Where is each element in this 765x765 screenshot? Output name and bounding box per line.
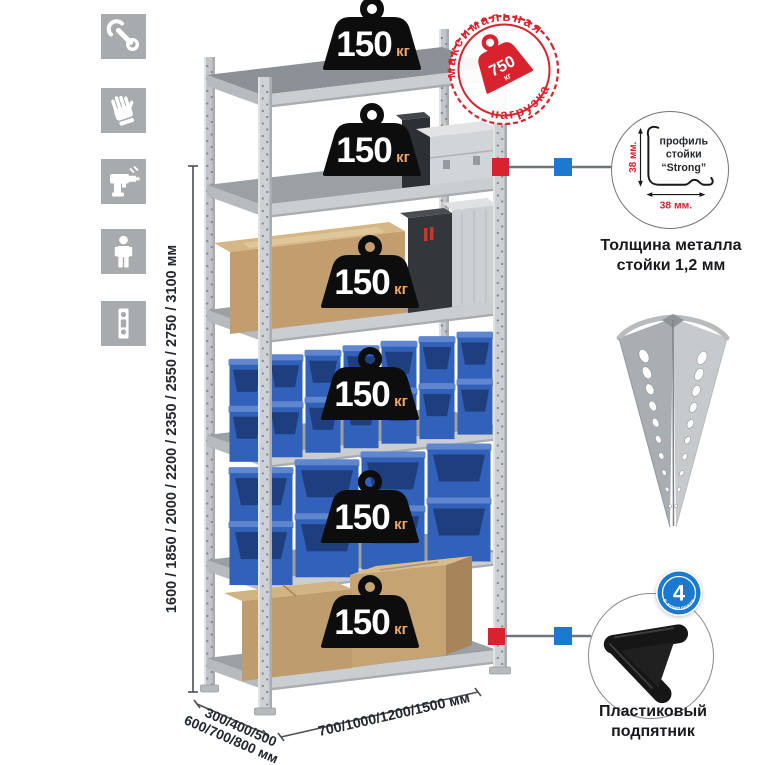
foot-detail-connector-bottom — [488, 627, 591, 645]
weight-unit: кг — [394, 281, 408, 298]
weight-unit: кг — [396, 43, 410, 60]
width-dimension-label: 700/1000/1200/1500 мм — [317, 690, 472, 740]
weight-value: 150 — [334, 263, 390, 302]
marker-blue-top — [554, 158, 572, 176]
shelf-load-weight: 150кг — [325, 1, 419, 69]
height-dimension-label: 1600 / 1850 / 2000 / 2200 / 2350 / 2550 … — [164, 245, 180, 613]
person-icon — [101, 229, 146, 274]
profile-label-line2: стойки — [666, 149, 702, 161]
weight-value: 150 — [334, 375, 390, 414]
weight-value: 150 — [334, 603, 390, 642]
profile-caption: Толщина металла стойки 1,2 мм — [596, 236, 746, 276]
weight-value: 150 — [336, 131, 392, 170]
profile-dim-vertical: 38 мм. — [628, 141, 639, 172]
marker-red-bottom — [488, 628, 505, 645]
post-profile-diagram: 38 мм. 38 мм. профиль стойки “Strong” — [612, 112, 728, 228]
angle-post-image — [600, 298, 745, 536]
shelving-rack-scene: 1600 / 1850 / 2000 / 2200 / 2350 / 2550 … — [160, 0, 640, 765]
kit-quantity-badge: 4 в комплекте — [655, 569, 703, 617]
weight-value: 150 — [336, 25, 392, 64]
profile-caption-line2: стойки 1,2 мм — [596, 256, 746, 276]
profile-caption-line1: Толщина металла — [596, 236, 746, 256]
post-profile-icon — [101, 301, 146, 346]
foot-caption-line1: Пластиковый — [592, 702, 714, 722]
height-dimension: 1600 / 1850 / 2000 / 2200 / 2350 / 2550 … — [164, 166, 198, 692]
width-dimension: 700/1000/1200/1500 мм — [278, 688, 481, 741]
profile-label-line3: “Strong” — [661, 162, 706, 174]
weight-unit: кг — [394, 621, 408, 638]
product-infographic: 1600 / 1850 / 2000 / 2200 / 2350 / 2550 … — [0, 0, 765, 765]
drill-icon — [101, 159, 146, 204]
wrench-icon — [101, 14, 146, 59]
profile-label-line1: профиль — [660, 135, 709, 147]
profile-dim-horizontal: 38 мм. — [660, 200, 693, 211]
weight-unit: кг — [394, 516, 408, 533]
rack-post — [201, 57, 219, 692]
weight-unit: кг — [394, 393, 408, 410]
foot-caption: Пластиковый подпятник — [592, 702, 714, 742]
badge-value: 4 — [673, 581, 686, 606]
post-profile-detail-circle: 38 мм. 38 мм. профиль стойки “Strong” — [611, 111, 729, 229]
weight-unit: кг — [396, 149, 410, 166]
weight-value: 150 — [334, 498, 390, 537]
foot-caption-line2: подпятник — [592, 722, 714, 742]
gloves-icon — [101, 88, 146, 133]
marker-red-top — [492, 158, 509, 176]
rack-scene-svg: 1600 / 1850 / 2000 / 2200 / 2350 / 2550 … — [160, 0, 640, 765]
marker-blue-bottom — [554, 627, 572, 645]
post-detail-connector-top — [492, 158, 613, 176]
